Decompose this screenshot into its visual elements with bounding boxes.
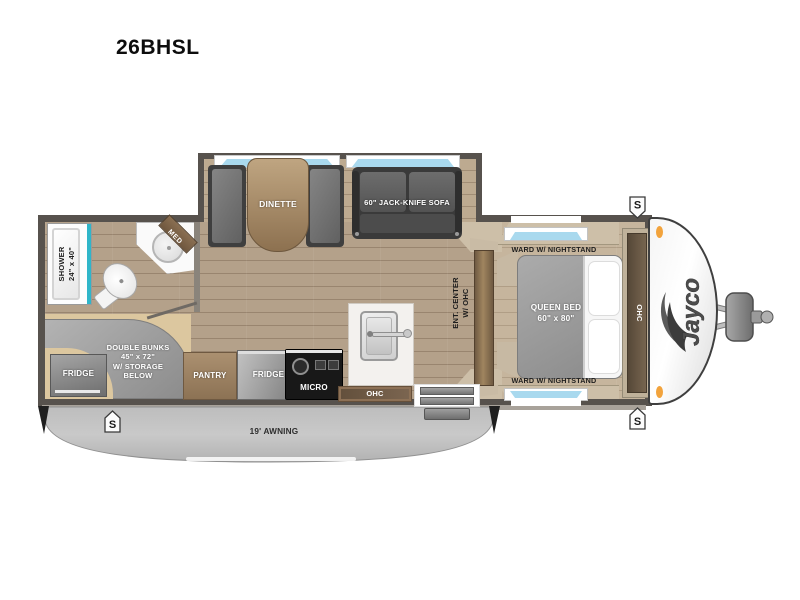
window-glass: [510, 391, 582, 398]
fridge-handle: [55, 390, 100, 393]
kitchen-fridge-label: FRIDGE: [237, 370, 300, 380]
range-top-trim: [286, 350, 342, 353]
awning-label: 19' AWNING: [222, 427, 326, 438]
marker-light-icon: [656, 226, 663, 238]
window-glass: [352, 159, 454, 167]
entry-step: [420, 387, 474, 395]
micro-label: MICRO: [285, 383, 343, 393]
ward-rear-label: WARD W/ NIGHTSTAND: [489, 376, 619, 385]
shower-accent-strip: [87, 224, 91, 304]
propane-tank-cover: [726, 293, 753, 341]
burner-icon: [315, 360, 326, 370]
pillow: [588, 319, 620, 374]
entry-step: [424, 408, 470, 420]
speaker-marker-icon: S: [629, 407, 646, 430]
sofa-bolt: [455, 232, 459, 236]
dinette-label: DINETTE: [232, 199, 324, 210]
speaker-marker-letter: S: [634, 416, 641, 428]
floorplan-page: 26BHSL DINETTE 60" JACK-KNIFE SOFA SHOWE…: [0, 0, 800, 600]
burner-icon: [328, 360, 339, 370]
rear-window-exterior: [511, 400, 581, 406]
kitchen-ohc-label: OHC: [338, 389, 412, 399]
bunk-fridge-label: FRIDGE: [50, 369, 107, 379]
front-window-exterior: [511, 216, 581, 223]
brand-logo-text: Jayco: [678, 278, 705, 346]
shower-label: SHOWER 24" x 40": [57, 214, 81, 314]
bathroom-wall: [194, 222, 200, 312]
awning-roller-highlight: [186, 457, 356, 461]
page-title: 26BHSL: [116, 36, 200, 60]
faucet-handle-icon: [367, 331, 373, 337]
ward-front-label: WARD W/ NIGHTSTAND: [489, 245, 619, 254]
speaker-marker-letter: S: [634, 200, 641, 212]
sofa-seat-cushion: [360, 214, 455, 233]
pantry-label: PANTRY: [183, 371, 237, 381]
toilet-flush: [119, 278, 125, 284]
brand-logo: Jayco: [657, 264, 705, 360]
queen-bed-label: QUEEN BED 60" x 80": [506, 303, 606, 324]
window-glass: [510, 232, 582, 240]
sink-drain: [167, 246, 171, 250]
marker-light-icon: [656, 386, 663, 398]
bedroom-ohc-label: OHC: [630, 283, 644, 343]
bedroom-window-front: [504, 227, 588, 241]
hitch-coupler: [751, 311, 762, 323]
sofa-label: 60" JACK-KNIFE SOFA: [352, 198, 462, 208]
hitch-ball-icon: [761, 311, 773, 323]
ent-center-label: ENT. CENTER W/ OHC: [451, 245, 475, 361]
speaker-marker-letter: S: [109, 419, 116, 431]
speaker-marker-icon: S: [104, 410, 121, 433]
ent-center-cabinet: [474, 250, 494, 386]
sofa-bolt: [355, 232, 359, 236]
speaker-marker-icon: S: [629, 196, 646, 219]
entry-step: [420, 397, 474, 405]
faucet-base-icon: [403, 329, 412, 338]
